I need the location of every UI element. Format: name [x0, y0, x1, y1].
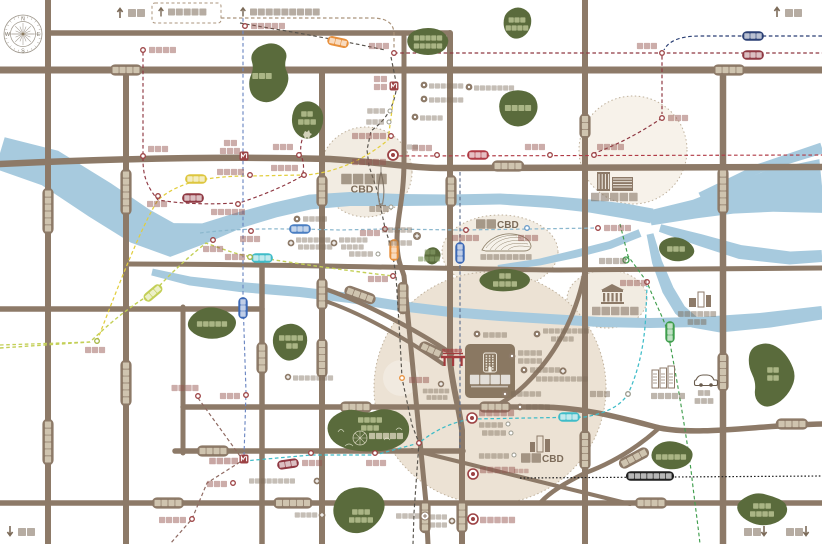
svg-text:W: W: [5, 32, 11, 38]
svg-text:E: E: [37, 32, 41, 38]
svg-text:CBD: CBD: [542, 454, 564, 465]
svg-text:S: S: [21, 49, 25, 55]
svg-text:CBD: CBD: [497, 220, 519, 231]
svg-text:N: N: [21, 17, 25, 23]
svg-text:CBD: CBD: [351, 184, 374, 196]
